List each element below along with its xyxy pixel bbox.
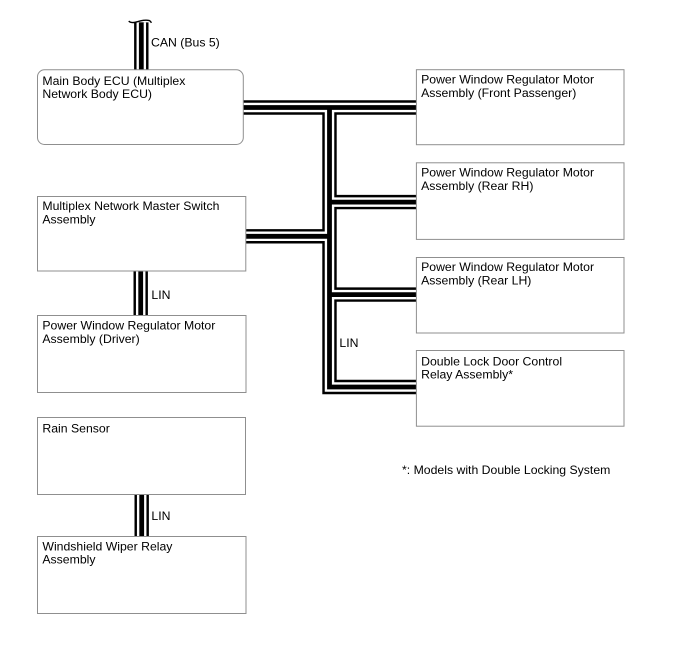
svg-text:Relay Assembly*: Relay Assembly* [421,368,513,382]
svg-text:Network Body ECU): Network Body ECU) [42,87,152,101]
svg-text:LIN: LIN [151,288,170,302]
svg-text:Assembly (Rear RH): Assembly (Rear RH) [421,179,533,193]
svg-text:Assembly (Rear LH): Assembly (Rear LH) [421,273,531,287]
svg-text:Assembly (Driver): Assembly (Driver) [42,332,139,346]
svg-text:Rain Sensor: Rain Sensor [42,421,109,435]
svg-text:Windshield Wiper Relay: Windshield Wiper Relay [42,539,173,553]
svg-text:Multiplex Network Master Switc: Multiplex Network Master Switch [42,199,219,213]
svg-text:Power Window Regulator Motor: Power Window Regulator Motor [421,73,594,87]
svg-text:LIN: LIN [151,509,170,523]
svg-text:Assembly: Assembly [42,553,96,567]
svg-text:Assembly (Front Passenger): Assembly (Front Passenger) [421,86,576,100]
svg-text:*: Models with Double Locking: *: Models with Double Locking System [402,463,610,477]
svg-text:Power Window Regulator Motor: Power Window Regulator Motor [421,260,594,274]
svg-text:LIN: LIN [339,336,358,350]
svg-text:Main Body ECU (Multiplex: Main Body ECU (Multiplex [42,74,185,88]
svg-text:Double Lock Door Control: Double Lock Door Control [421,354,562,368]
svg-text:Power Window Regulator Motor: Power Window Regulator Motor [42,319,215,333]
svg-text:Assembly: Assembly [42,212,96,226]
svg-text:CAN (Bus 5): CAN (Bus 5) [151,35,220,49]
svg-text:Power Window Regulator Motor: Power Window Regulator Motor [421,166,594,180]
